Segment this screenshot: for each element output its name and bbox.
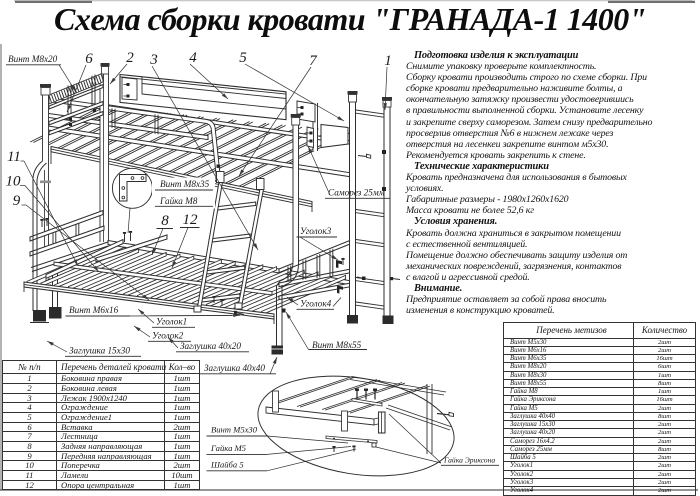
svg-text:2: 2 — [126, 50, 134, 66]
svg-text:Винт М5х30: Винт М5х30 — [211, 425, 258, 435]
svg-text:Заглушка 15х30: Заглушка 15х30 — [69, 346, 130, 356]
svg-text:6: 6 — [85, 51, 93, 67]
svg-text:Уголок2: Уголок2 — [152, 331, 184, 341]
svg-text:Гайка М5: Гайка М5 — [210, 443, 247, 453]
svg-text:Гайка Эриксона: Гайка Эриксона — [443, 456, 495, 465]
svg-text:1: 1 — [384, 53, 392, 69]
svg-text:Винт М8х20: Винт М8х20 — [8, 54, 58, 64]
svg-text:Винт М8х35: Винт М8х35 — [160, 179, 210, 189]
svg-text:3: 3 — [149, 52, 158, 68]
svg-text:9: 9 — [13, 193, 21, 209]
svg-text:4: 4 — [189, 50, 197, 66]
svg-text:Гайка М8: Гайка М8 — [159, 196, 198, 206]
svg-text:10: 10 — [6, 174, 22, 190]
svg-text:Уголок3: Уголок3 — [300, 226, 332, 236]
svg-text:Винт М6х16: Винт М6х16 — [69, 305, 119, 315]
svg-text:5: 5 — [239, 50, 247, 66]
svg-text:8: 8 — [161, 213, 169, 229]
svg-text:11: 11 — [7, 149, 21, 165]
svg-text:Шайба 5: Шайба 5 — [210, 460, 244, 470]
svg-text:Винт М8х55: Винт М8х55 — [312, 340, 362, 350]
svg-text:7: 7 — [309, 53, 318, 69]
svg-text:12: 12 — [183, 212, 199, 228]
svg-text:Заглушка 40х40: Заглушка 40х40 — [204, 363, 265, 373]
svg-text:Заглушка 40х20: Заглушка 40х20 — [180, 341, 241, 351]
svg-text:Уголок4: Уголок4 — [300, 299, 332, 309]
svg-text:Уголок1: Уголок1 — [156, 317, 187, 327]
svg-text:Саморез 25мм: Саморез 25мм — [328, 188, 385, 198]
